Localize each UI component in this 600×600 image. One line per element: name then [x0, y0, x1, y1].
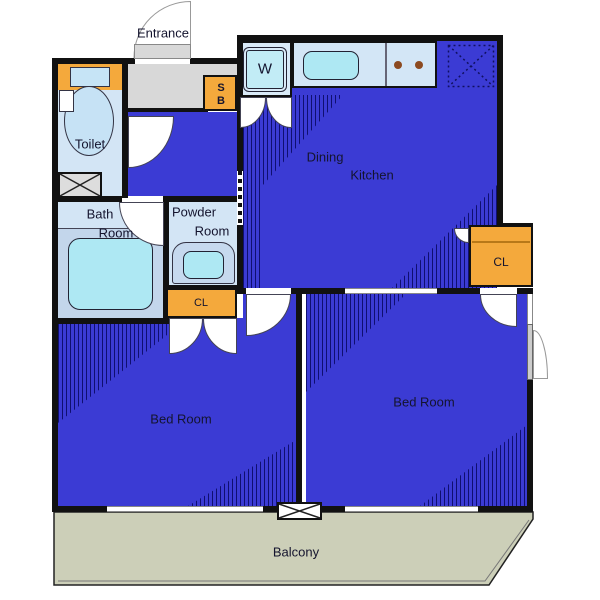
label-bath-2: Room — [99, 226, 134, 241]
shoe-box-label-b: B — [217, 95, 225, 107]
label-toilet: Toilet — [75, 137, 105, 152]
door-arc-toilet — [128, 116, 174, 168]
window — [345, 506, 478, 512]
refrigerator-space-icon — [447, 44, 495, 88]
label-powder-1: Powder — [172, 205, 216, 220]
label-kitchen: Kitchen — [350, 168, 393, 183]
shoe-box-label-s: S — [217, 82, 224, 94]
label-entrance: Entrance — [137, 26, 189, 41]
stove-burner — [415, 61, 423, 69]
wall — [497, 35, 503, 225]
pipe-space — [58, 172, 102, 198]
closet-door-left-petal — [169, 318, 203, 354]
stove-burner — [394, 61, 402, 69]
door-arc-closet-right — [454, 228, 469, 243]
wall — [237, 288, 246, 294]
label-bedroom-right: Bed Room — [393, 395, 454, 410]
floor-plan: W — [0, 0, 600, 600]
window — [345, 288, 437, 294]
toilet-paper-holder — [59, 90, 74, 112]
washer-door-right-petal — [266, 97, 292, 128]
label-balcony: Balcony — [273, 545, 319, 560]
label-dining: Dining — [307, 150, 344, 165]
vanity-sink — [183, 251, 224, 279]
entrance-door-leaf — [134, 44, 191, 59]
closet-left-label: CL — [194, 297, 208, 309]
window — [107, 506, 263, 512]
toilet-tank — [70, 67, 110, 87]
label-bath-1: Bath — [87, 207, 114, 222]
washer-door-left-petal — [240, 97, 266, 128]
wall — [237, 225, 243, 290]
wall-opening-dashed — [238, 171, 242, 225]
pipe-space — [277, 502, 322, 520]
wall — [478, 506, 533, 512]
washer-label: W — [258, 61, 272, 78]
wall — [296, 294, 302, 506]
closet-right-shelf-line — [472, 241, 530, 243]
closet-right-label: CL — [493, 255, 508, 269]
wall — [190, 58, 243, 64]
counter-divider — [385, 43, 387, 86]
wall — [169, 196, 237, 202]
entrance-step-edge — [122, 108, 208, 112]
wall — [52, 318, 169, 324]
wall — [237, 35, 503, 41]
door-arc-bedroom-right — [480, 294, 517, 327]
kitchen-sink — [303, 51, 359, 80]
label-bedroom-left: Bed Room — [150, 412, 211, 427]
wall — [302, 288, 345, 294]
door-arc-bedroom-left — [246, 294, 291, 336]
wall — [437, 288, 480, 294]
label-powder-2: Room — [195, 224, 230, 239]
bathtub — [68, 238, 153, 310]
wall — [52, 506, 107, 512]
window — [527, 294, 533, 324]
closet-door-right-petal — [203, 318, 237, 354]
door-arc-side-exit — [533, 330, 548, 379]
wall — [52, 58, 58, 512]
